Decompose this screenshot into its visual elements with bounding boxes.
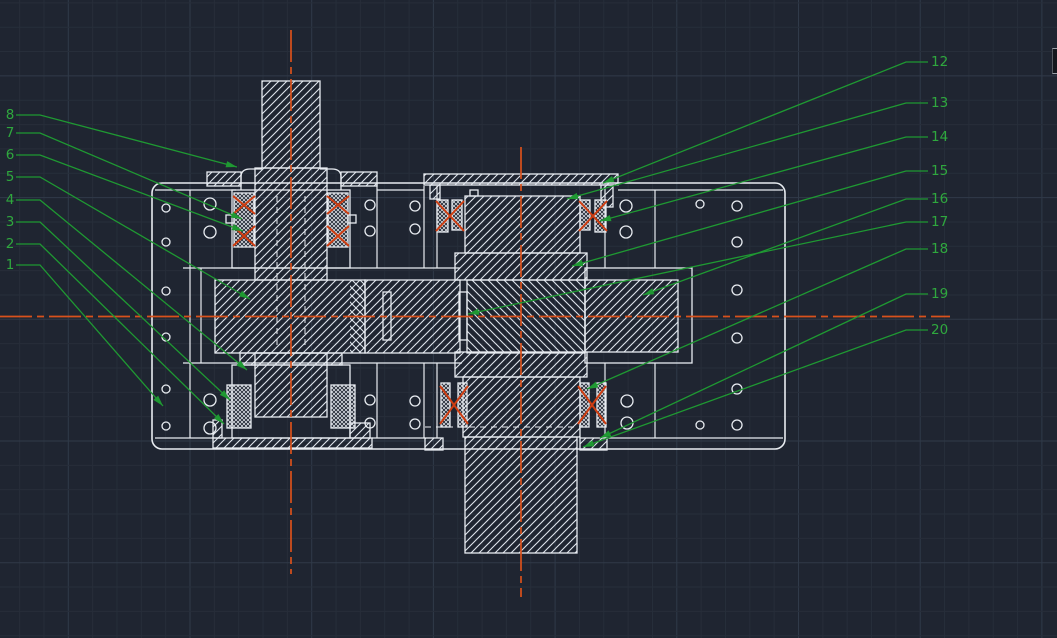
part-section (470, 190, 478, 196)
part-section (207, 172, 241, 186)
part-number-label: 13 (931, 95, 948, 111)
leader-arrow (226, 161, 238, 170)
part-section (213, 438, 372, 448)
bolt-hole (620, 226, 632, 238)
part-number-label: 17 (931, 214, 948, 230)
part-section (465, 196, 580, 253)
bearing-section (328, 193, 348, 247)
leader-line (567, 103, 928, 199)
bolt-hole (696, 200, 704, 208)
bolt-hole (732, 420, 742, 430)
part-number-label: 4 (6, 192, 15, 208)
part-number-label: 19 (931, 286, 948, 302)
bolt-hole (410, 419, 420, 429)
bolt-hole (696, 421, 704, 429)
leader-line (16, 155, 243, 231)
bolt-hole (732, 333, 742, 343)
part-number-label: 6 (6, 147, 15, 163)
part-number-label: 15 (931, 163, 948, 179)
part-number-label: 7 (6, 125, 15, 141)
part-number-label: 1 (6, 257, 15, 273)
part-number-label: 12 (931, 54, 948, 70)
bolt-hole (410, 201, 420, 211)
bolt-hole (365, 395, 375, 405)
bolt-hole (621, 395, 633, 407)
part-section (350, 423, 370, 438)
part-number-label: 5 (6, 169, 15, 185)
leader-line (16, 200, 247, 370)
bolt-hole (365, 226, 375, 236)
bolt-hole (410, 396, 420, 406)
part-number-label: 16 (931, 191, 948, 207)
part-section (341, 172, 377, 186)
bolt-hole (732, 285, 742, 295)
part-number-label: 20 (931, 322, 948, 338)
leader-line (603, 62, 928, 183)
part-number-label: 2 (6, 236, 15, 252)
part-number-label: 3 (6, 214, 15, 230)
bearing-section (234, 193, 254, 247)
cad-application-window: 12345678121314151617181920 (0, 0, 1057, 638)
part-number-label: 18 (931, 241, 948, 257)
bearing-section (227, 385, 251, 428)
bearing-section (331, 385, 355, 428)
part-section (213, 420, 222, 438)
cad-canvas[interactable]: 12345678121314151617181920 (0, 0, 1057, 638)
bolt-hole (732, 201, 742, 211)
bolt-hole (365, 200, 375, 210)
part-number-label: 8 (6, 107, 15, 123)
part-section (425, 438, 443, 450)
leader-line (16, 222, 230, 400)
side-panel-edge[interactable] (1052, 48, 1057, 74)
part-number-label: 14 (931, 129, 948, 145)
bolt-hole (732, 237, 742, 247)
leader-line (16, 115, 237, 167)
bolt-hole (410, 224, 420, 234)
part-section (430, 185, 440, 199)
bolt-hole (620, 200, 632, 212)
